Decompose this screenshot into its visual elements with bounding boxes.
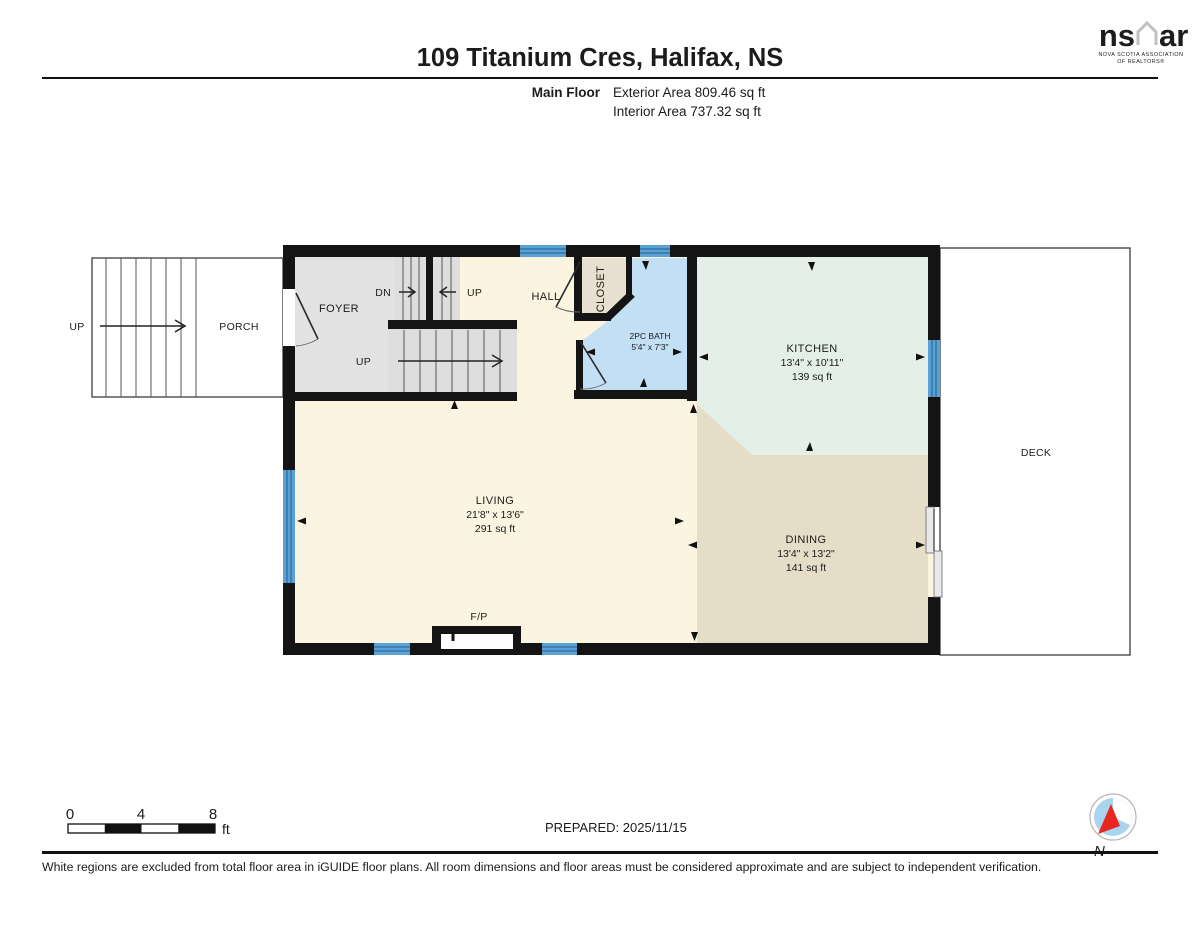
scale-bar: 0 4 8 ft bbox=[66, 806, 230, 837]
scale-tick-8: 8 bbox=[209, 806, 217, 823]
nsar-logo: ns ar NOVA SCOTIA ASSOCIATION OF REALTOR… bbox=[1099, 18, 1189, 65]
window-kitchen-right bbox=[928, 340, 940, 397]
floor-label: Main Floor bbox=[532, 85, 601, 100]
living-area: 291 sq ft bbox=[475, 523, 515, 535]
hall-label: HALL bbox=[531, 291, 560, 303]
deck-label: DECK bbox=[1021, 447, 1051, 459]
foyer-label: FOYER bbox=[319, 303, 359, 315]
footer-divider bbox=[42, 851, 1158, 854]
prepared-date: PREPARED: 2025/11/15 bbox=[545, 820, 687, 835]
kitchen-label: KITCHEN bbox=[786, 343, 837, 355]
logo-caption-2: OF REALTORS® bbox=[1117, 58, 1165, 65]
porch-area: UP PORCH bbox=[69, 258, 283, 397]
compass: N bbox=[1090, 794, 1136, 860]
scale-unit: ft bbox=[222, 821, 230, 837]
logo-ar-text: ar bbox=[1159, 18, 1188, 53]
dining-label: DINING bbox=[786, 534, 827, 546]
disclaimer-text: White regions are excluded from total fl… bbox=[42, 860, 1041, 874]
page-title: 109 Titanium Cres, Halifax, NS bbox=[417, 44, 784, 72]
stairs-dn-label: DN bbox=[375, 287, 391, 299]
living-dimensions: 21'8" x 13'6" bbox=[466, 509, 524, 521]
exterior-area-label: Exterior Area 809.46 sq ft bbox=[613, 85, 766, 100]
scale-tick-0: 0 bbox=[66, 806, 74, 823]
stair-divider-wall bbox=[426, 257, 433, 325]
fireplace-label: F/P bbox=[470, 611, 487, 623]
closet-label: CLOSET bbox=[595, 266, 607, 312]
stairs-up-main-label: UP bbox=[356, 356, 371, 368]
window-living-bottom-1 bbox=[374, 643, 410, 655]
logo-ns-text: ns bbox=[1099, 18, 1135, 53]
bath-labels: 2PC BATH 5'4" x 7'3" bbox=[630, 331, 671, 352]
living-label: LIVING bbox=[476, 495, 514, 507]
bath-label: 2PC BATH bbox=[630, 331, 671, 341]
logo-caption-1: NOVA SCOTIA ASSOCIATION bbox=[1099, 52, 1184, 58]
floor-plan-page: 109 Titanium Cres, Halifax, NS Main Floo… bbox=[0, 0, 1200, 927]
deck-area: DECK bbox=[940, 248, 1130, 655]
room-kitchen-fill bbox=[697, 257, 928, 455]
window-hall-top bbox=[520, 245, 566, 257]
exterior-stairs-label: UP bbox=[69, 321, 84, 333]
interior-area-label: Interior Area 737.32 sq ft bbox=[613, 104, 761, 119]
bath-dimensions: 5'4" x 7'3" bbox=[631, 342, 668, 352]
dining-dimensions: 13'4" x 13'2" bbox=[777, 548, 835, 560]
window-living-bottom-2 bbox=[542, 643, 577, 655]
kitchen-area: 139 sq ft bbox=[792, 371, 832, 383]
window-living-left bbox=[283, 470, 295, 583]
dining-area: 141 sq ft bbox=[786, 562, 826, 574]
stairs-up-small-label: UP bbox=[467, 287, 482, 299]
kitchen-dimensions: 13'4" x 10'11" bbox=[781, 357, 844, 369]
scale-tick-4: 4 bbox=[137, 806, 145, 823]
house-icon bbox=[1138, 23, 1156, 45]
window-bath-top bbox=[640, 245, 670, 257]
floor-plan-canvas: 109 Titanium Cres, Halifax, NS Main Floo… bbox=[0, 0, 1200, 927]
porch-label: PORCH bbox=[219, 321, 258, 333]
header-divider bbox=[42, 77, 1158, 79]
